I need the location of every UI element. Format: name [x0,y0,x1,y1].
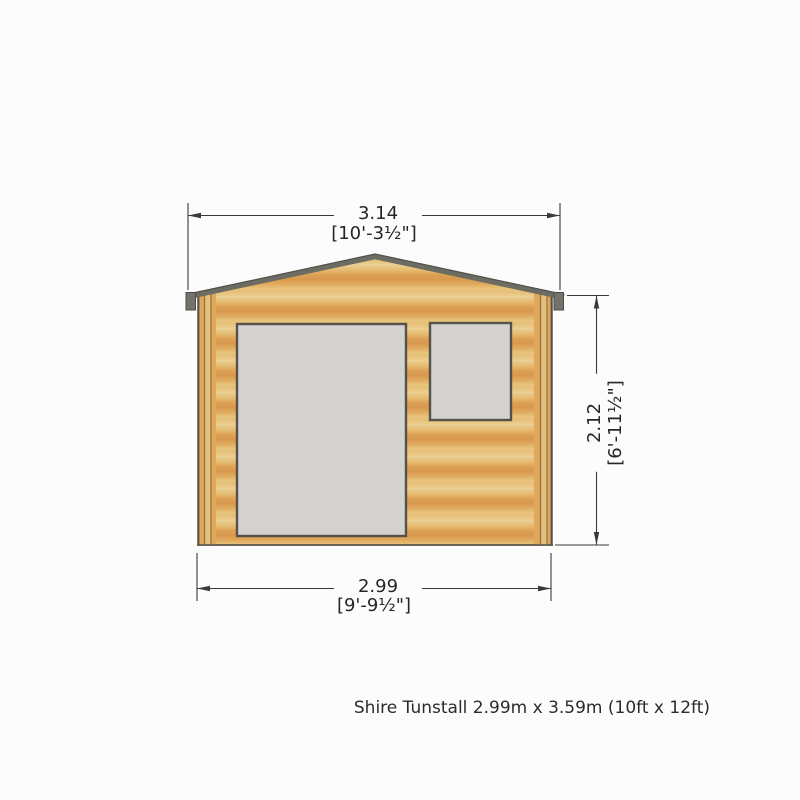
dim-height-eave: 2.12 [6'-11½"] [582,374,628,472]
product-caption: Shire Tunstall 2.99m x 3.59m (10ft x 12f… [300,698,710,718]
dim-width-base-imperial: [9'-9½"] [324,596,424,616]
cabin-drawing [0,0,800,800]
elevation-diagram: 3.14 [10'-3½"] 2.12 [6'-11½"] 2.99 [9'-9… [0,0,800,800]
corner-post-left [198,289,216,545]
dim-height-eave-imperial: [6'-11½"] [605,380,626,466]
dim-width-overall-imperial: [10'-3½"] [320,224,428,244]
roof-overhang-right [554,293,564,311]
dim-width-overall-metric: 3.14 [334,204,422,224]
roof-overhang-left [186,293,196,311]
door-opening [237,324,406,536]
corner-post-right [534,289,552,545]
dim-width-base-metric: 2.99 [334,577,422,597]
window-opening [430,323,511,420]
dim-height-eave-metric: 2.12 [584,380,605,466]
